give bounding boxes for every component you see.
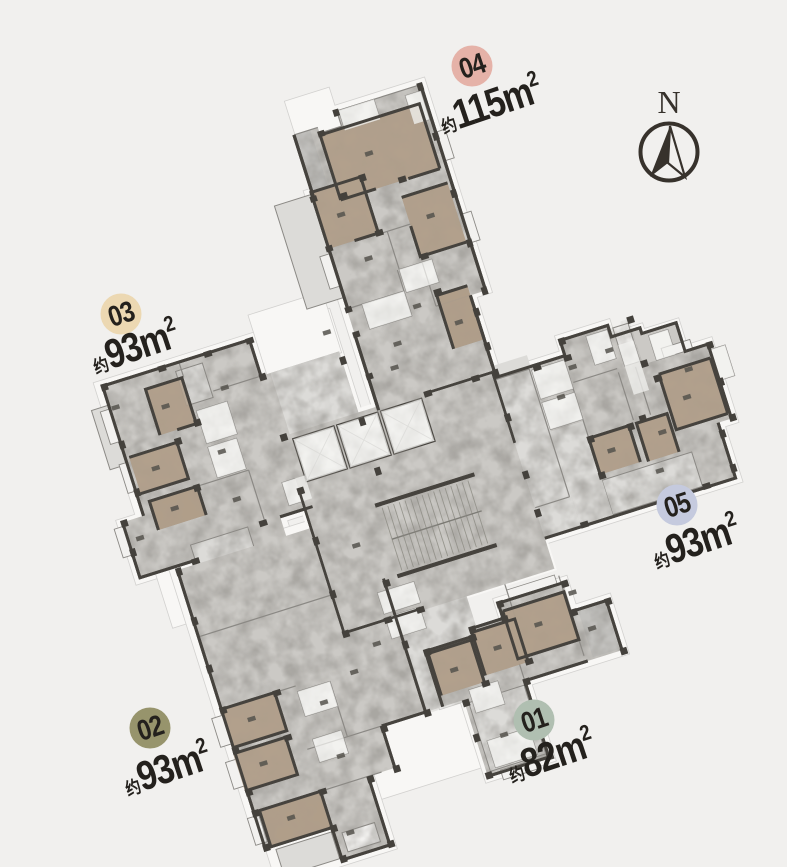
svg-text:N: N [657, 84, 680, 120]
